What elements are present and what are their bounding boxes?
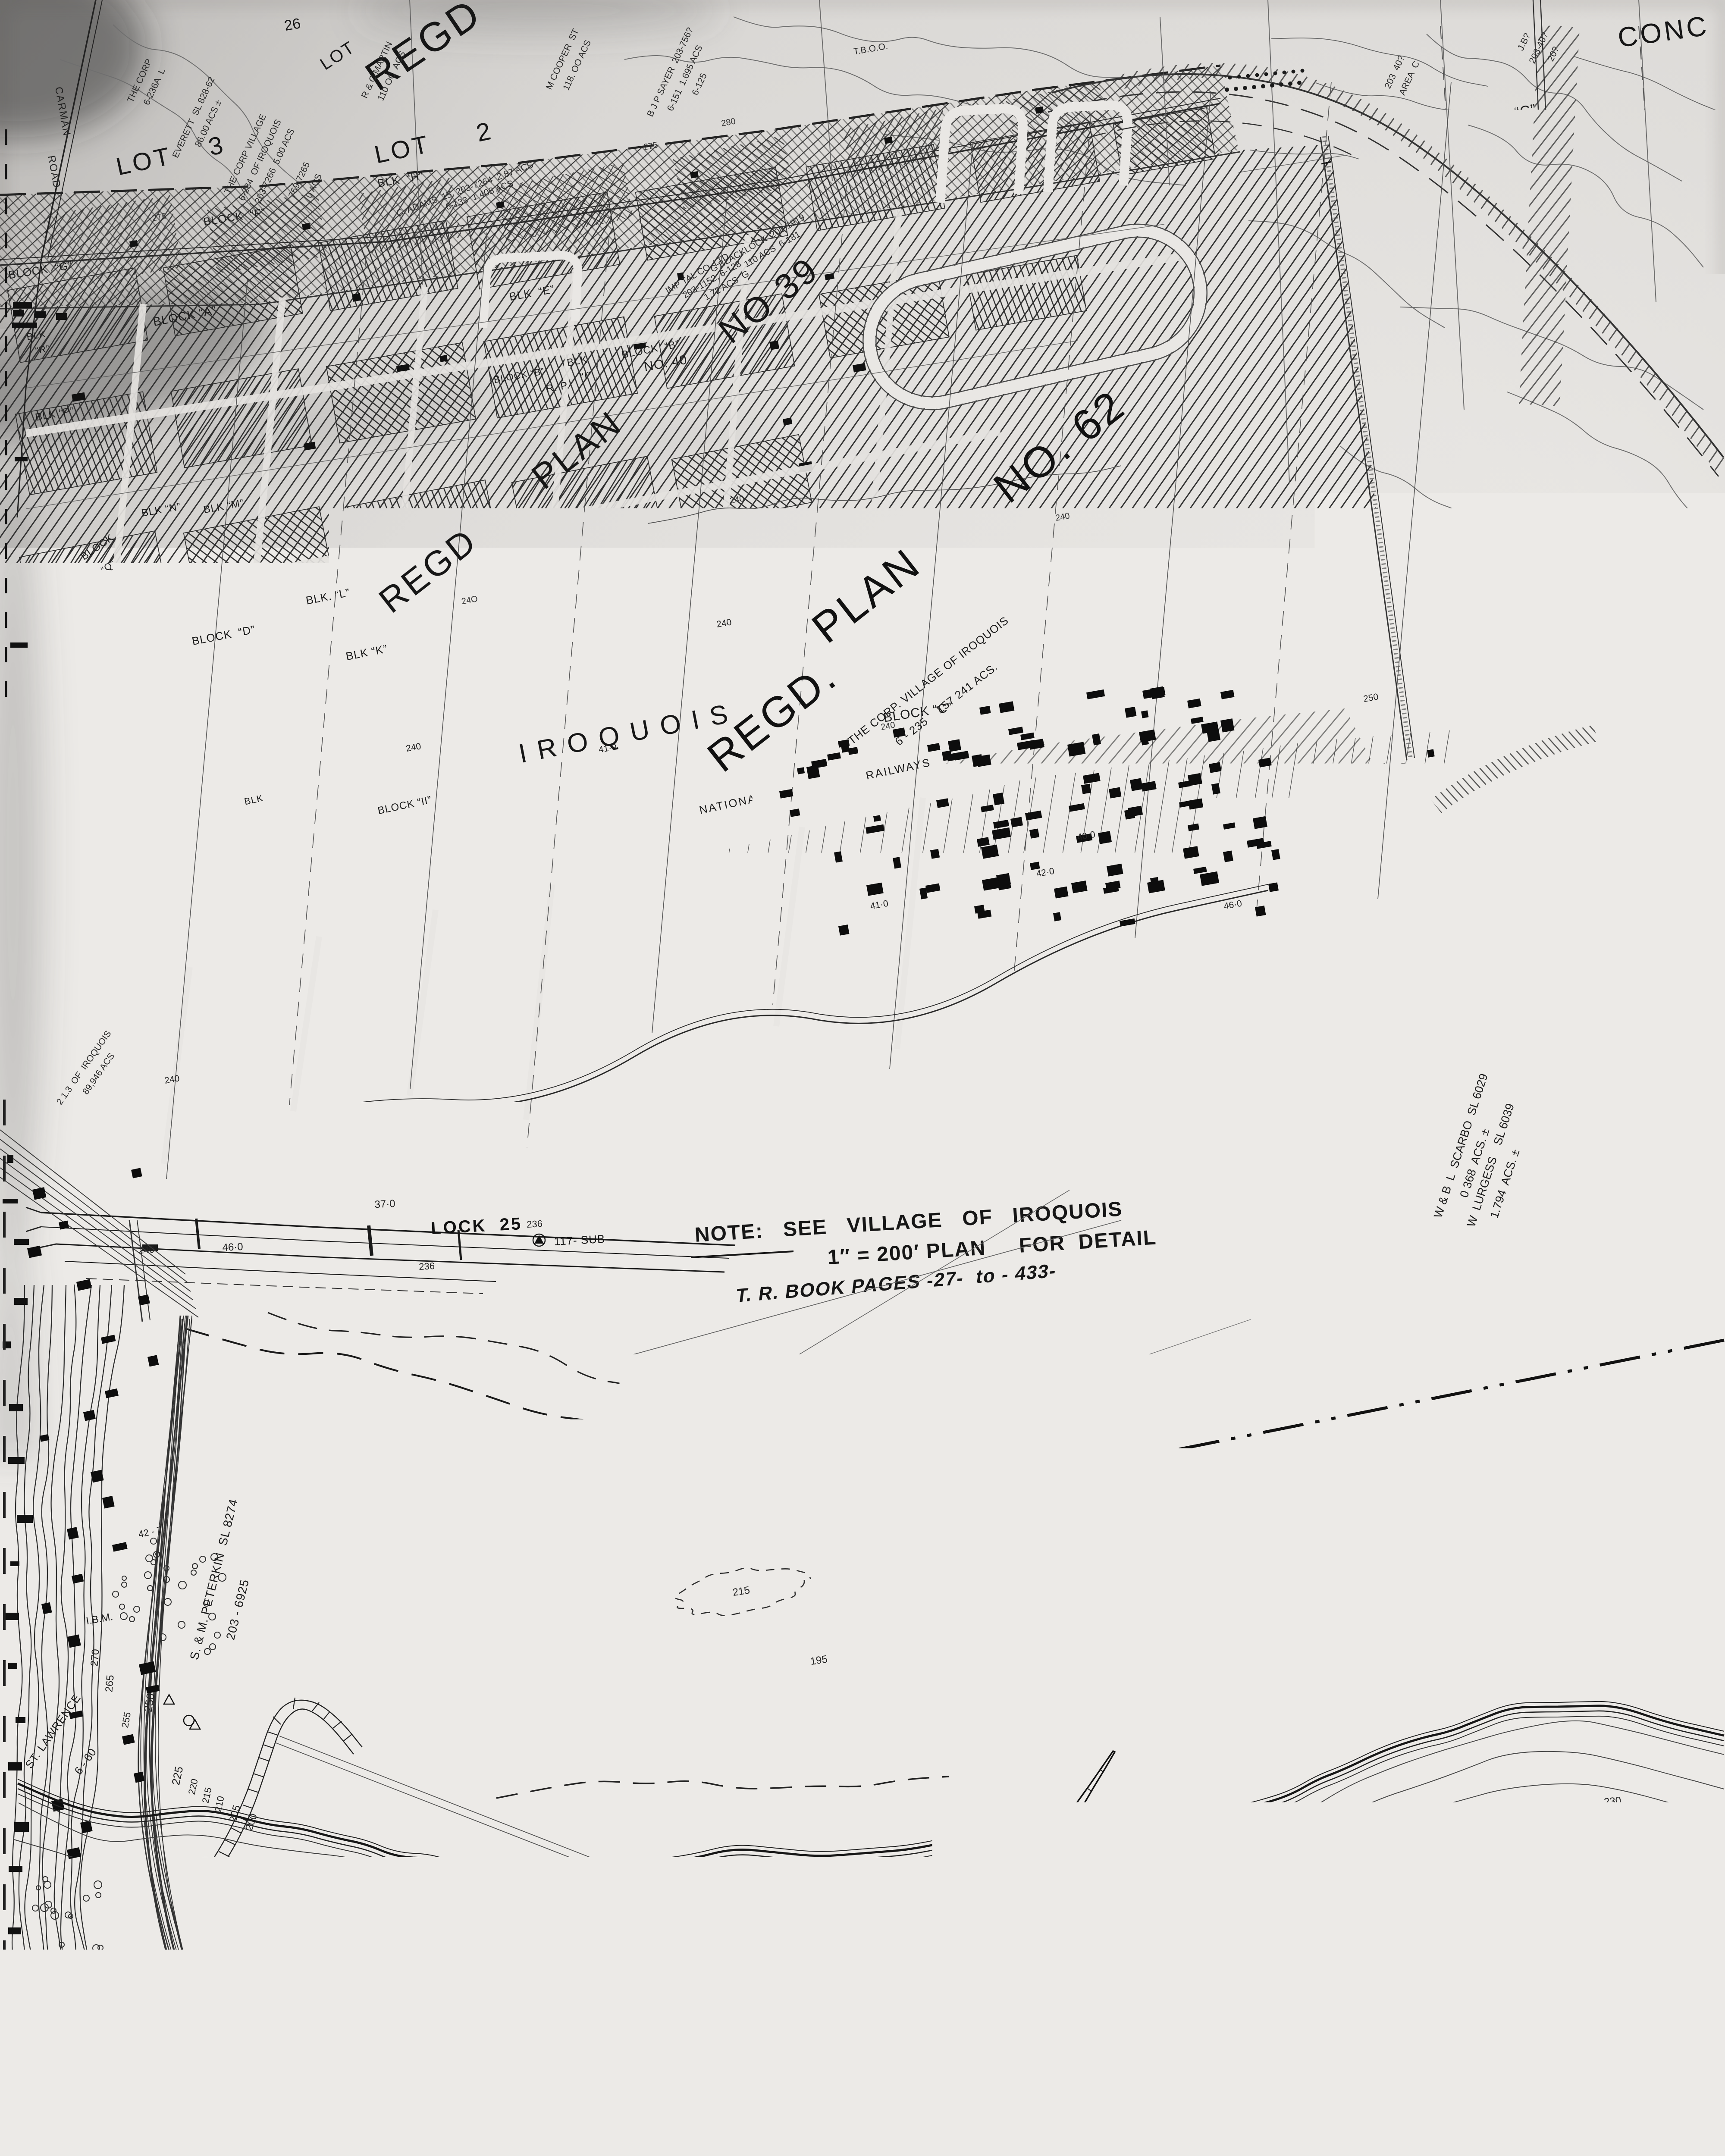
svg-text:235: 235 <box>499 1932 517 1946</box>
svg-text:46·0: 46·0 <box>222 1241 243 1253</box>
svg-text:260: 260 <box>1681 2129 1700 2142</box>
svg-text:270: 270 <box>1599 2086 1618 2099</box>
svg-text:240: 240 <box>1611 1808 1630 1821</box>
svg-text:51: 51 <box>420 1571 437 1587</box>
svg-text:117- SUB: 117- SUB <box>554 1232 605 1248</box>
svg-text:ST.: ST. <box>1207 1319 1291 1390</box>
svg-text:270: 270 <box>1242 2043 1260 2056</box>
svg-text:250: 250 <box>1709 1958 1721 1975</box>
svg-text:255: 255 <box>1634 1853 1652 1866</box>
svg-text:250: 250 <box>564 1990 582 2004</box>
svg-text:270: 270 <box>88 1648 101 1667</box>
svg-text:250: 250 <box>1623 1833 1649 1852</box>
svg-text:26: 26 <box>283 15 302 34</box>
svg-text:260: 260 <box>1642 1870 1661 1883</box>
svg-text:245: 245 <box>1618 1822 1637 1835</box>
svg-text:265: 265 <box>1211 1996 1229 2009</box>
svg-text:225: 225 <box>808 1876 834 1896</box>
svg-text:265: 265 <box>732 2094 750 2108</box>
svg-text:260: 260 <box>680 2055 699 2069</box>
svg-text:240: 240 <box>1138 1832 1156 1845</box>
svg-text:230: 230 <box>1603 1795 1622 1808</box>
svg-text:37·0: 37·0 <box>374 1198 395 1210</box>
svg-text:236: 236 <box>419 1260 435 1272</box>
svg-text:“I”: “I” <box>580 370 593 383</box>
svg-text:236: 236 <box>527 1218 543 1230</box>
svg-text:265: 265 <box>1586 1969 1605 1983</box>
svg-text:250: 250 <box>1095 1874 1121 1892</box>
svg-text:255: 255 <box>607 2018 625 2032</box>
svg-text:240: 240 <box>521 1949 539 1963</box>
svg-text:260: 260 <box>1181 1952 1199 1965</box>
svg-text:245: 245 <box>538 1967 556 1981</box>
svg-text:275: 275 <box>1276 2093 1294 2106</box>
svg-text:265: 265 <box>103 1674 116 1692</box>
svg-text:255: 255 <box>1155 1909 1173 1922</box>
svg-text:255: 255 <box>1699 1984 1710 2001</box>
svg-text:245: 245 <box>1121 1853 1139 1866</box>
svg-text:230: 230 <box>460 1917 479 1931</box>
